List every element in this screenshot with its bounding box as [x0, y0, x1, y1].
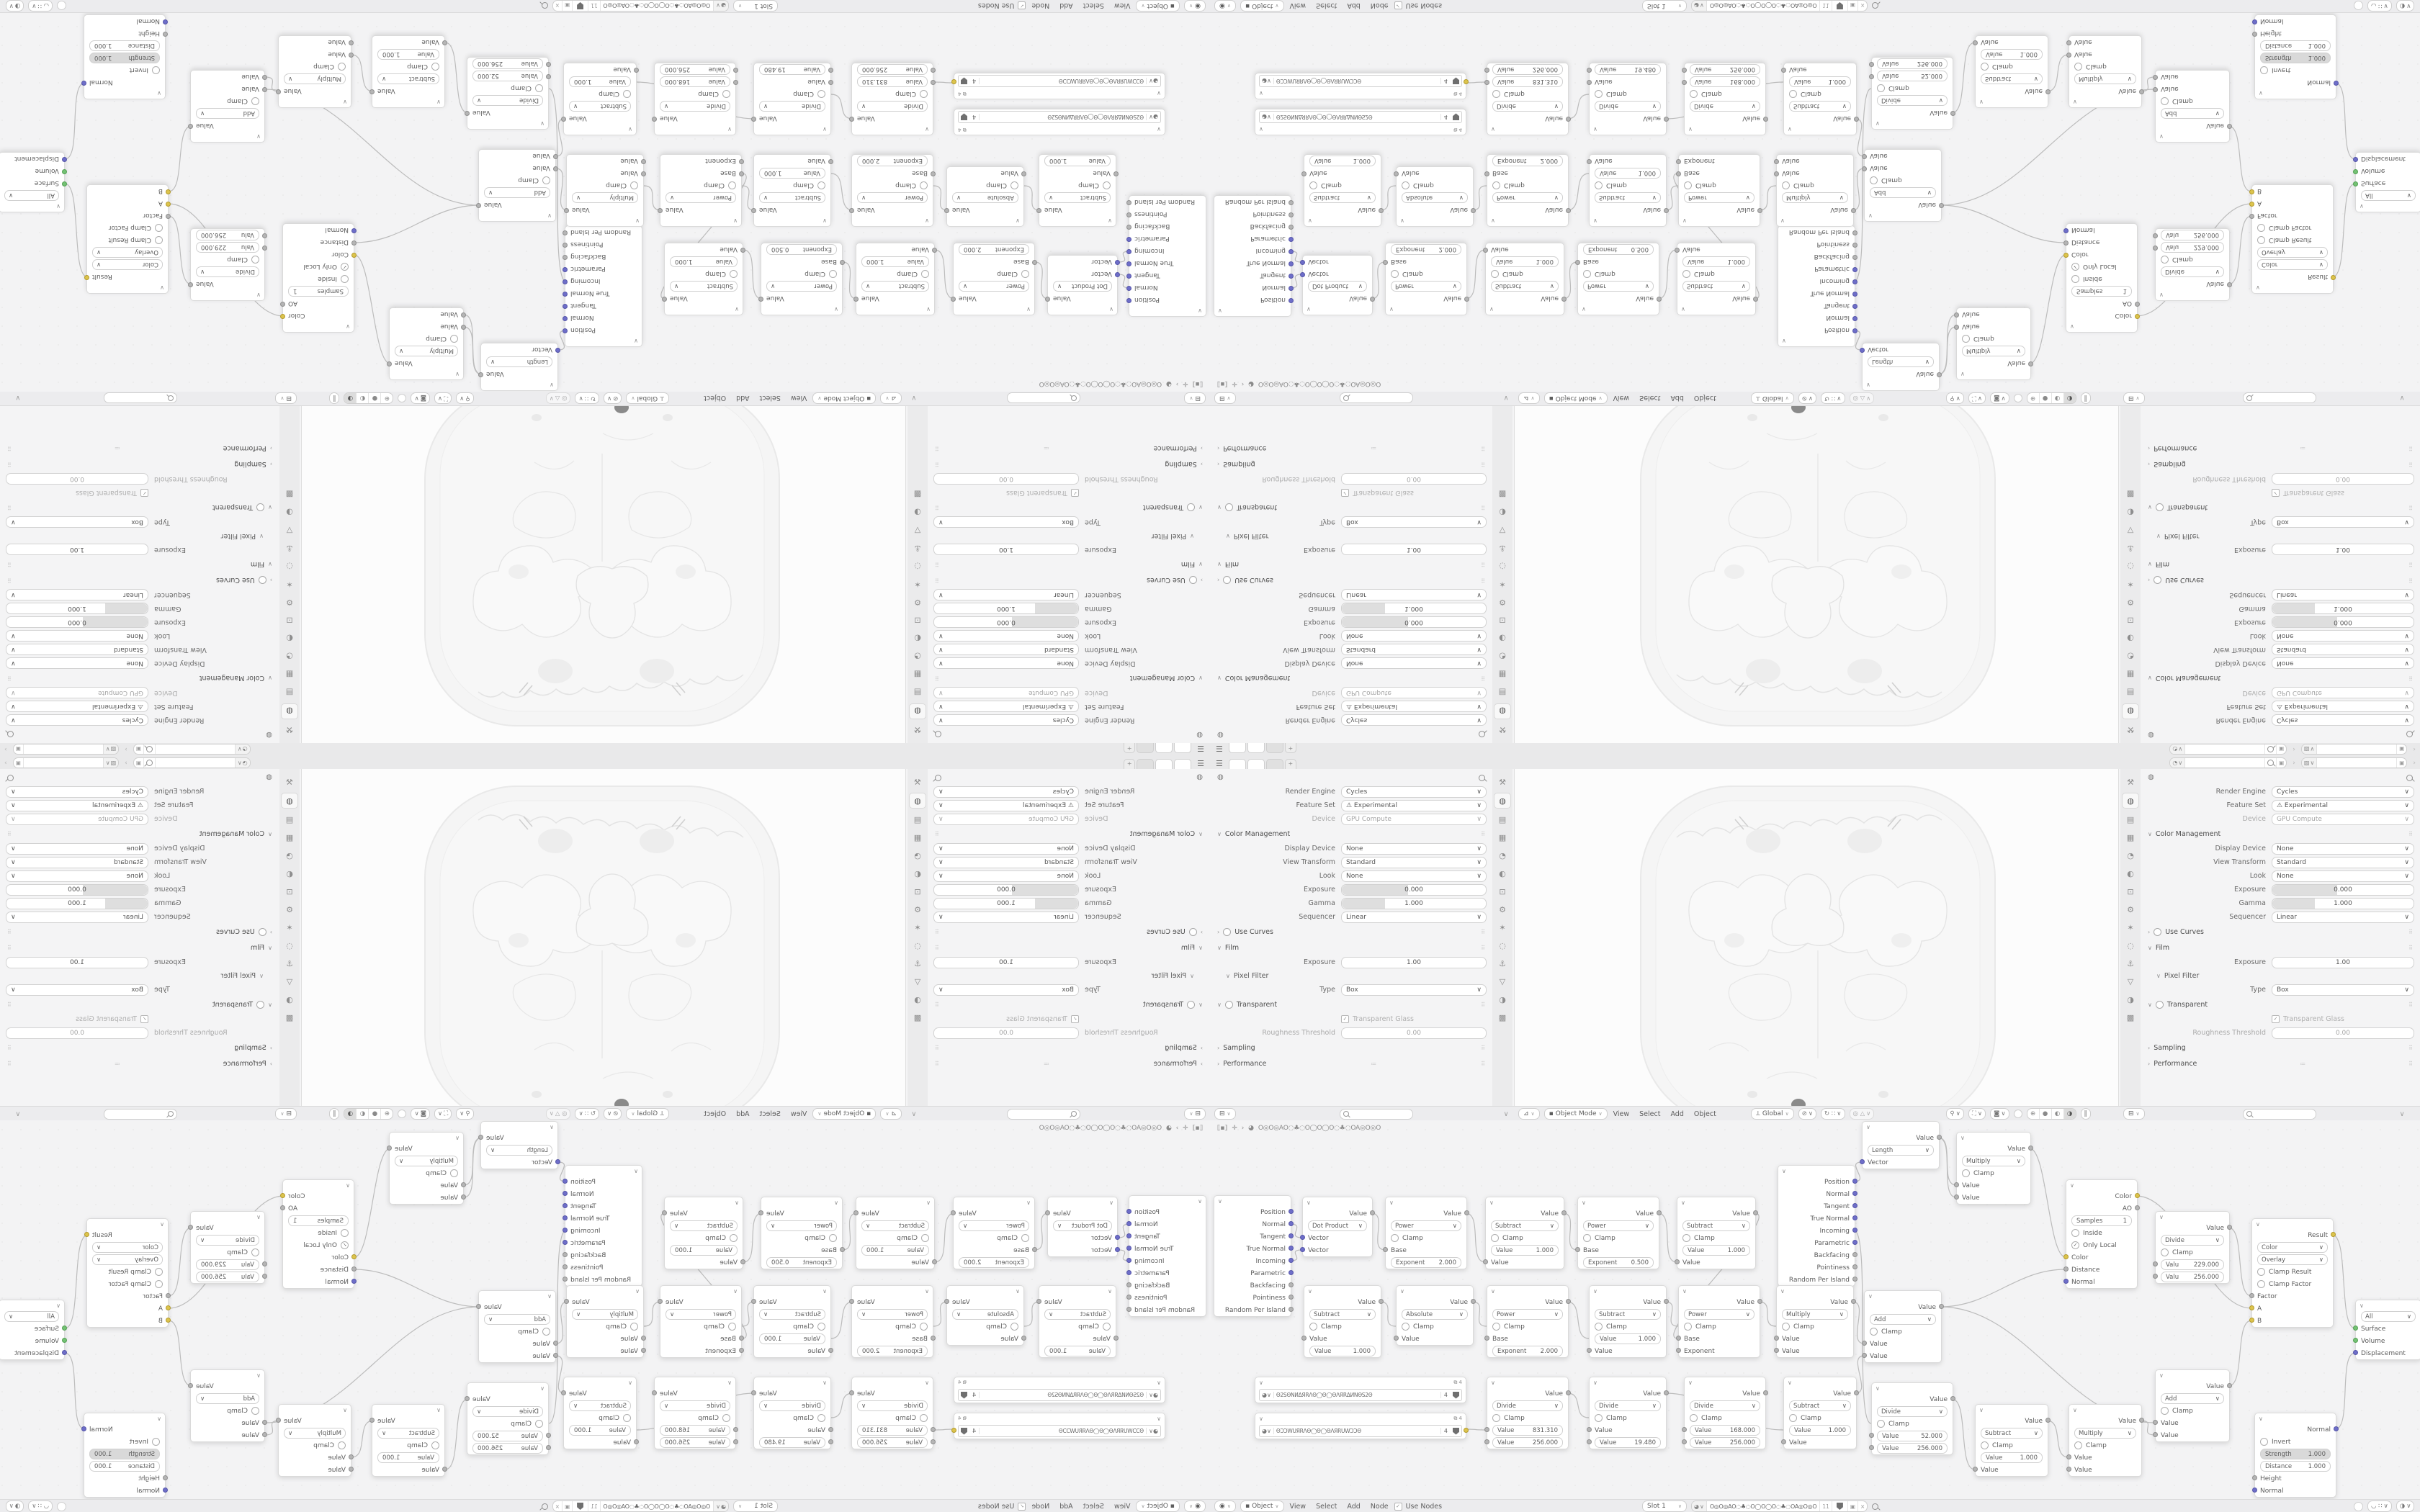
- operation-dropdown[interactable]: Multiply∨: [1962, 1156, 2025, 1166]
- value-field[interactable]: Exponent2.000: [959, 244, 1029, 255]
- checkbox-clamp[interactable]: [1981, 63, 1989, 71]
- node-header[interactable]: ∨: [1386, 305, 1466, 315]
- pivot-point-button[interactable]: ⊘∨: [1798, 392, 1816, 404]
- viewport-editor-button[interactable]: ⊿∨: [880, 1108, 902, 1120]
- operation-dropdown[interactable]: Power∨: [665, 1309, 736, 1320]
- add-workspace-button[interactable]: +: [1285, 743, 1296, 753]
- output-socket-color[interactable]: [2135, 314, 2140, 319]
- shading-material-icon[interactable]: ◐: [356, 1109, 368, 1119]
- menu-view[interactable]: View: [1289, 1503, 1308, 1511]
- node-math-multiply-2[interactable]: ∨ValueMultiply∨ClampValueValue: [389, 1132, 464, 1205]
- node-header[interactable]: ∨: [1486, 305, 1564, 315]
- node-header[interactable]: ∨: [564, 1377, 636, 1387]
- section-film[interactable]: ∨Film⠿: [1210, 557, 1492, 572]
- output-socket-color[interactable]: [2135, 1193, 2140, 1198]
- node-math-divide-3[interactable]: ∨ValueDivide∨ClampValue168.000Value256.0…: [1684, 63, 1766, 135]
- particles-tab[interactable]: ✶: [2123, 920, 2138, 935]
- section-sampling[interactable]: ›Sampling⠿: [1210, 456, 1492, 472]
- value-field[interactable]: Samples1: [2071, 1215, 2132, 1226]
- section-transparent[interactable]: ∨Transparent⠿: [2141, 500, 2420, 516]
- value-input-socket[interactable]: [1484, 1427, 1489, 1432]
- image-datablock[interactable]: ◕∨Θ2SΘNИΔЯRΛΘ◯Θ◯ΘΛЯRΔИNΘS2Θ4: [958, 1389, 1161, 1401]
- output-socket-tangent[interactable]: [563, 1203, 568, 1208]
- node-math-power-3[interactable]: ∨ValuePower∨ClampBaseExponent2.000: [851, 1285, 933, 1358]
- value-field[interactable]: Value1.000: [1044, 1346, 1111, 1356]
- dropdown-view-transform[interactable]: Standard∨: [2272, 644, 2414, 656]
- material-datablock[interactable]: ◕∨ O◎O◎AO◌♣◌O◯O◯O◌♣◌OA◎O◎O 11 ▣ ×: [552, 0, 729, 12]
- shading-solid-icon[interactable]: ●: [2040, 393, 2052, 403]
- section-performance[interactable]: ›Performance≔⠿: [928, 1056, 1210, 1071]
- value-input-socket[interactable]: [546, 1433, 551, 1438]
- material-tab[interactable]: ◑: [2123, 505, 2138, 520]
- output-socket-value[interactable]: [951, 1210, 956, 1215]
- modifiers-tab[interactable]: ⚙: [1494, 595, 1510, 610]
- physics-tab[interactable]: ◌: [2123, 559, 2138, 574]
- shading-solid-icon[interactable]: ●: [368, 1109, 380, 1119]
- section-color-management[interactable]: ∨Color Management⠿: [1210, 670, 1492, 686]
- operation-dropdown[interactable]: Divide∨: [660, 1400, 730, 1411]
- shader-node-editor[interactable]: ⟦▪⟧ ✛ › ◕ O◎O◎AO◌♣◌O◯O◯O◌♣◌OA◎O◎O ∨Posit…: [0, 1120, 1210, 1499]
- node-math-power-2[interactable]: ∨ValuePower∨ClampBaseExponent0.500: [761, 243, 843, 315]
- checkbox-invert[interactable]: [2260, 66, 2268, 74]
- checkbox-clamp-factor[interactable]: [155, 1280, 163, 1288]
- input-socket-displacement[interactable]: [62, 1350, 67, 1355]
- input-socket-value[interactable]: [828, 80, 833, 85]
- dropdown-type[interactable]: Box∨: [6, 517, 148, 528]
- operation-dropdown[interactable]: Subtract∨: [1595, 192, 1661, 203]
- node-header[interactable]: ∨: [660, 1286, 741, 1296]
- collapse-chevron-icon[interactable]: ∨: [540, 1385, 544, 1392]
- output-socket-incoming[interactable]: [563, 1228, 568, 1233]
- collapse-chevron-icon[interactable]: ∨: [1491, 1380, 1495, 1386]
- node-header[interactable]: ∨: [1679, 1286, 1760, 1296]
- value-field[interactable]: Value1.000: [670, 1245, 738, 1256]
- checkbox-clamp-factor[interactable]: [2257, 1280, 2265, 1288]
- value-field-roughness-threshold[interactable]: 0.00: [1341, 474, 1487, 485]
- output-socket-value[interactable]: [662, 1210, 667, 1215]
- output-socket-color[interactable]: [280, 314, 285, 319]
- node-material-output[interactable]: ∨All∨SurfaceVolumeDisplacement: [0, 152, 65, 212]
- texture-tab[interactable]: ▩: [282, 1010, 297, 1025]
- move-icon[interactable]: ✛: [1232, 380, 1237, 387]
- filter-chevron-icon[interactable]: ∨: [15, 1110, 20, 1118]
- copy-icon[interactable]: ▣: [134, 758, 144, 768]
- operation-dropdown[interactable]: Add∨: [484, 1314, 550, 1325]
- constraints-tab[interactable]: ⚓: [910, 956, 926, 971]
- workspace-tab-active[interactable]: [1266, 759, 1283, 769]
- input-socket-value[interactable]: [461, 325, 466, 330]
- editor-type-button[interactable]: ⊟∨: [1184, 392, 1206, 404]
- output-socket-pointiness[interactable]: [563, 1264, 568, 1269]
- value-field-roughness-threshold[interactable]: 0.00: [2272, 1027, 2414, 1039]
- shading-wireframe-icon[interactable]: ⊕: [380, 393, 393, 403]
- output-socket-value[interactable]: [465, 111, 470, 116]
- menu-add[interactable]: Add: [1345, 2, 1361, 10]
- checkbox-clamp[interactable]: [921, 1234, 929, 1242]
- checkbox-clamp[interactable]: [1595, 1414, 1603, 1422]
- section-sampling[interactable]: ›Sampling⠿: [2141, 456, 2420, 472]
- checkbox-clamp-result[interactable]: [2257, 236, 2265, 244]
- node-header[interactable]: ∨: [191, 1370, 264, 1380]
- output-socket-value[interactable]: [1471, 1299, 1476, 1304]
- collapse-chevron-icon[interactable]: ∨: [1875, 121, 1880, 127]
- dropdown-render-engine[interactable]: Cycles∨: [6, 715, 148, 726]
- xray-button[interactable]: ◙∨: [1990, 1108, 2009, 1120]
- node-vector-math-dot-product[interactable]: ∨ValueDot Product∨VectorVector: [1047, 1197, 1118, 1257]
- operation-dropdown[interactable]: Multiply∨: [284, 73, 346, 84]
- node-math-add-1[interactable]: ∨ValueAdd∨ClampValueValue: [478, 1290, 556, 1363]
- output-socket-value[interactable]: [188, 124, 193, 129]
- value-input-socket[interactable]: [262, 246, 267, 251]
- particles-tab[interactable]: ✶: [1494, 920, 1510, 935]
- node-header[interactable]: ∨: [1872, 119, 1953, 129]
- section-performance[interactable]: ›Performance≔⠿: [928, 441, 1210, 456]
- checkbox-clamp[interactable]: [1962, 335, 1970, 343]
- value-field-exposure[interactable]: 0.000: [1341, 884, 1487, 896]
- output-socket-normal[interactable]: [2334, 81, 2339, 86]
- checkbox-clamp[interactable]: [1103, 1323, 1111, 1331]
- node-image-texture-1[interactable]: ∨⧉ 4◕∨Θ2SΘNИΔЯRΛΘ◯Θ◯ΘΛЯRΔИNΘS2Θ4: [954, 109, 1165, 135]
- input-socket-value[interactable]: [1113, 171, 1119, 176]
- checkbox-inside[interactable]: [341, 275, 349, 283]
- copy-icon[interactable]: ▣: [14, 758, 24, 768]
- section-sampling[interactable]: ›Sampling⠿: [928, 456, 1210, 472]
- checkbox-transparent-glass[interactable]: ✓Transparent Glass: [1341, 487, 1414, 500]
- input-socket-value[interactable]: [1774, 1336, 1779, 1341]
- copy-icon[interactable]: ▣: [1847, 1, 1857, 11]
- value-field-gamma[interactable]: 1.000: [933, 603, 1079, 615]
- output-socket-incoming[interactable]: [1126, 249, 1131, 254]
- pin-icon[interactable]: [2264, 758, 2276, 768]
- checkbox-clamp[interactable]: [920, 181, 928, 189]
- node-header[interactable]: ∨: [655, 1377, 735, 1387]
- value-field[interactable]: Value256.000: [472, 1443, 543, 1454]
- collapse-chevron-icon[interactable]: ∨: [157, 91, 161, 97]
- input-socket-value[interactable]: [1394, 1336, 1399, 1341]
- user-count[interactable]: 11: [1819, 1501, 1832, 1511]
- output-socket-normal[interactable]: [563, 1191, 568, 1196]
- physics-tab[interactable]: ◌: [1494, 559, 1510, 574]
- menu-select[interactable]: Select: [1638, 395, 1662, 402]
- operation-dropdown[interactable]: Divide∨: [1595, 1400, 1661, 1411]
- fake-user-shield-icon[interactable]: [961, 1428, 967, 1435]
- section-use-curves[interactable]: ›Use Curves⠿: [0, 572, 279, 588]
- output-socket-normal[interactable]: [1126, 1221, 1131, 1226]
- output-socket-value[interactable]: [849, 117, 854, 122]
- section-color-management[interactable]: ∨Color Management⠿: [1210, 826, 1492, 842]
- dropdown-type[interactable]: Box∨: [1341, 984, 1487, 996]
- parent-toggle[interactable]: [2354, 1, 2363, 11]
- modifiers-tab[interactable]: ⚙: [2123, 595, 2138, 610]
- collapse-chevron-icon[interactable]: ∨: [1780, 1288, 1785, 1295]
- section-checkbox[interactable]: [1225, 504, 1233, 512]
- input-socket-value[interactable]: [1954, 1194, 1959, 1200]
- value-field-exposure[interactable]: 1.00: [2272, 957, 2414, 968]
- value-input-socket[interactable]: [1682, 1427, 1687, 1432]
- input-socket-base[interactable]: [1383, 260, 1388, 265]
- node-header[interactable]: ∨: [954, 305, 1034, 315]
- dropdown-sequencer[interactable]: Linear∨: [2272, 912, 2414, 923]
- input-socket-value[interactable]: [2066, 1454, 2071, 1459]
- shading-material-icon[interactable]: ◐: [2052, 1109, 2064, 1119]
- node-math-subtract-3[interactable]: ∨ValueSubtract∨ClampValueValue1.000: [1304, 154, 1381, 227]
- input-socket-value[interactable]: [641, 159, 646, 164]
- node-header[interactable]: ∨: [1865, 211, 1941, 221]
- copy-icon[interactable]: ▣: [14, 744, 24, 754]
- fake-user-shield-icon[interactable]: [1453, 114, 1459, 121]
- pin-icon[interactable]: [144, 758, 156, 768]
- node-header[interactable]: ∨: [279, 97, 351, 107]
- output-socket-value[interactable]: [1854, 1390, 1859, 1395]
- section-performance[interactable]: ›Performance≔⠿: [2141, 1056, 2420, 1071]
- operation-dropdown[interactable]: Subtract∨: [670, 1220, 738, 1231]
- collapse-chevron-icon[interactable]: ∨: [1491, 218, 1495, 225]
- section-checkbox[interactable]: [2156, 1001, 2164, 1009]
- collapse-chevron-icon[interactable]: ∨: [1681, 1200, 1685, 1206]
- operation-dropdown[interactable]: Color∨: [92, 1242, 163, 1253]
- node-math-add-1[interactable]: ∨ValueAdd∨ClampValueValue: [478, 149, 556, 222]
- input-socket-value[interactable]: [349, 1467, 354, 1472]
- physics-tab[interactable]: ◌: [282, 938, 297, 953]
- scene-tab[interactable]: ◔: [910, 649, 926, 664]
- pin-icon[interactable]: [144, 744, 156, 754]
- checkbox-clamp[interactable]: [2161, 97, 2169, 105]
- orientation-selector[interactable]: ⟂ Global∨: [626, 1108, 669, 1120]
- checkbox-clamp[interactable]: [251, 1407, 259, 1415]
- input-socket-value[interactable]: [1774, 1348, 1779, 1353]
- input-socket-b[interactable]: [166, 1318, 171, 1323]
- node-math-subtract-3[interactable]: ∨ValueSubtract∨ClampValueValue1.000: [1304, 1285, 1381, 1358]
- checkbox-clamp[interactable]: [1595, 181, 1603, 189]
- collapse-chevron-icon[interactable]: ∨: [1157, 91, 1161, 97]
- scene-tab[interactable]: ◔: [1494, 649, 1510, 664]
- node-header[interactable]: ∨: [1048, 305, 1117, 315]
- constraints-tab[interactable]: ⚓: [1494, 956, 1510, 971]
- section-film[interactable]: ∨Film⠿: [2141, 940, 2420, 955]
- view-layer-name-field[interactable]: [2317, 744, 2396, 754]
- operation-dropdown[interactable]: Subtract∨: [1044, 192, 1111, 203]
- node-header[interactable]: ∨: [84, 1413, 165, 1423]
- input-socket-volume[interactable]: [62, 169, 67, 174]
- checkbox-clamp[interactable]: [623, 1414, 631, 1422]
- value-input-socket[interactable]: [546, 62, 551, 67]
- snapping-button[interactable]: ◡ ∷∨: [2367, 1500, 2392, 1512]
- copy-icon[interactable]: ▣: [563, 1501, 573, 1511]
- collapse-chevron-icon[interactable]: ∨: [1782, 1168, 1786, 1174]
- output-socket-backfacing[interactable]: [563, 1252, 568, 1257]
- scene-name-field[interactable]: [2185, 758, 2264, 768]
- view-layer-tab[interactable]: ▦: [2123, 667, 2138, 682]
- collapse-chevron-icon[interactable]: ∨: [1489, 1200, 1494, 1206]
- value-input-socket[interactable]: [828, 68, 833, 73]
- dropdown-type[interactable]: Box∨: [1341, 517, 1487, 528]
- view-layer-tab[interactable]: ▦: [282, 667, 297, 682]
- node-header[interactable]: ∨: [279, 1405, 351, 1415]
- input-socket-value[interactable]: [442, 40, 447, 45]
- output-socket-value[interactable]: [1045, 297, 1050, 302]
- value-field-exposure[interactable]: 1.00: [6, 957, 148, 968]
- value-field-roughness-threshold[interactable]: 0.00: [933, 474, 1079, 485]
- mode-selector[interactable]: ▪ Object Mode∨: [812, 392, 876, 404]
- operation-dropdown[interactable]: Divide∨: [1690, 101, 1760, 112]
- input-socket-base[interactable]: [1575, 260, 1580, 265]
- value-input-socket[interactable]: [262, 1274, 267, 1279]
- operation-dropdown[interactable]: Add∨: [1870, 1314, 1936, 1325]
- value-field-roughness-threshold[interactable]: 0.00: [2272, 474, 2414, 485]
- output-socket-value[interactable]: [853, 297, 859, 302]
- node-header[interactable]: ∨: [665, 305, 743, 315]
- operation-dropdown[interactable]: Subtract∨: [377, 73, 439, 84]
- node-header[interactable]: ∨: [87, 1219, 168, 1229]
- input-socket-value[interactable]: [1675, 1259, 1680, 1264]
- operation-dropdown[interactable]: Multiply∨: [395, 1156, 458, 1166]
- operation-dropdown[interactable]: Power∨: [1391, 281, 1461, 292]
- operation-dropdown[interactable]: Subtract∨: [861, 281, 929, 292]
- node-header[interactable]: ∨: [754, 216, 830, 226]
- input-socket-volume[interactable]: [2353, 169, 2358, 174]
- checkbox-clamp[interactable]: [2074, 63, 2082, 71]
- value-input-socket[interactable]: [733, 68, 738, 73]
- input-socket-surface[interactable]: [2353, 181, 2358, 186]
- value-field[interactable]: Strength1.000: [2260, 1449, 2331, 1459]
- dropdown-look[interactable]: None∨: [1341, 631, 1487, 642]
- checkbox-invert[interactable]: [152, 66, 160, 74]
- node-header[interactable]: ∨: [567, 216, 643, 226]
- world-tab[interactable]: ◐: [910, 631, 926, 646]
- material-tab[interactable]: ◑: [910, 505, 926, 520]
- input-socket-surface[interactable]: [2353, 1326, 2358, 1331]
- node-ambient-occlusion[interactable]: ∨ColorAOSamples1Inside✓Only LocalColorDi…: [2066, 1179, 2138, 1289]
- menu-add[interactable]: Add: [1058, 1503, 1074, 1511]
- view-layer-tab[interactable]: ▦: [910, 667, 926, 682]
- collapse-chevron-icon[interactable]: ∨: [1491, 1288, 1495, 1295]
- node-math-multiply-1[interactable]: ∨ValueMultiply∨ClampValueValue: [1776, 1285, 1854, 1358]
- output-socket-position[interactable]: [563, 1179, 568, 1184]
- output-socket-value[interactable]: [1664, 208, 1669, 213]
- value-field[interactable]: Value256.000: [1492, 64, 1563, 75]
- view-layer-selector[interactable]: ▨∨ ▣: [2301, 744, 2408, 755]
- collapse-chevron-icon[interactable]: ∨: [2359, 204, 2364, 210]
- value-field[interactable]: Value1.000: [377, 49, 439, 60]
- collapse-chevron-icon[interactable]: ∨: [735, 1200, 739, 1206]
- collapse-chevron-icon[interactable]: ∨: [628, 1380, 632, 1386]
- section-film[interactable]: ∨Film⠿: [928, 557, 1210, 572]
- output-socket-ao[interactable]: [2135, 302, 2140, 307]
- collapse-chevron-icon[interactable]: ∨: [823, 1380, 827, 1386]
- section-use-curves[interactable]: ›Use Curves⠿: [0, 924, 279, 940]
- dropdown-sequencer[interactable]: Linear∨: [1341, 912, 1487, 923]
- dropdown-type[interactable]: Box∨: [933, 984, 1079, 996]
- copy-icon[interactable]: ▣: [2396, 758, 2406, 768]
- input-socket-value[interactable]: [1973, 1467, 1978, 1472]
- input-socket-value[interactable]: [1587, 1348, 1592, 1353]
- value-field-gamma[interactable]: 1.000: [1341, 898, 1487, 909]
- value-field[interactable]: Value52.000: [1877, 71, 1948, 81]
- node-header[interactable]: ∨: [372, 1405, 444, 1415]
- collapse-chevron-icon[interactable]: ∨: [547, 1293, 552, 1300]
- gizmo-toggle-button[interactable]: ⚲∨: [456, 1108, 473, 1120]
- collapse-chevron-icon[interactable]: ∨: [926, 1200, 931, 1206]
- value-field[interactable]: Value19.480: [759, 1437, 825, 1448]
- checkbox-invert[interactable]: [152, 1438, 160, 1446]
- input-socket-height[interactable]: [163, 1475, 168, 1480]
- operation-dropdown[interactable]: Multiply∨: [1782, 1309, 1848, 1320]
- menu-view[interactable]: View: [1289, 2, 1308, 10]
- value-input-socket[interactable]: [1869, 74, 1874, 79]
- node-math-absolute[interactable]: ∨ValueAbsolute∨ClampValue: [946, 1285, 1024, 1346]
- output-socket-backfacing[interactable]: [1289, 225, 1294, 230]
- operation-dropdown[interactable]: Divide∨: [2161, 1235, 2224, 1246]
- node-header[interactable]: ∨: [1304, 216, 1381, 226]
- node-header[interactable]: ∨: [660, 216, 741, 226]
- render-tab[interactable]: ◍: [1494, 793, 1511, 809]
- pause-button[interactable]: ‖: [2081, 1108, 2091, 1120]
- node-header[interactable]: ∨: [2255, 1413, 2336, 1423]
- node-math-subtract-2[interactable]: ∨ValueSubtract∨ClampValue1.000Value: [1677, 1197, 1756, 1269]
- value-field[interactable]: Value256.000: [857, 1437, 928, 1448]
- value-input-socket[interactable]: [262, 1261, 267, 1266]
- value-field-exposure[interactable]: 0.000: [1341, 617, 1487, 629]
- dropdown-sequencer[interactable]: Linear∨: [1341, 590, 1487, 601]
- operation-dropdown[interactable]: Multiply∨: [572, 192, 638, 203]
- checkbox-clamp[interactable]: [730, 270, 738, 278]
- node-math-subtract-4[interactable]: ∨ValueSubtract∨ClampValue1.000Value: [753, 1285, 831, 1358]
- particles-tab[interactable]: ✶: [282, 920, 297, 935]
- operation-dropdown[interactable]: Subtract∨: [1789, 101, 1851, 112]
- shader-editor-icon-button[interactable]: ◉∨: [1214, 0, 1236, 12]
- node-header[interactable]: ∨: [1590, 1286, 1666, 1296]
- input-socket-value[interactable]: [553, 154, 558, 159]
- collapse-chevron-icon[interactable]: ∨: [2070, 324, 2074, 330]
- menu-select[interactable]: Select: [1082, 1503, 1106, 1511]
- operation-dropdown[interactable]: Power∨: [766, 281, 837, 292]
- output-socket-value[interactable]: [561, 117, 566, 122]
- operation-dropdown[interactable]: Add∨: [484, 187, 550, 198]
- input-socket-base[interactable]: [931, 171, 936, 176]
- copy-icon[interactable]: ▣: [563, 1, 573, 11]
- proportional-edit-button[interactable]: ◎ △∨: [546, 392, 571, 404]
- output-socket-random-per-island[interactable]: [563, 1277, 568, 1282]
- node-math-divide-5[interactable]: ∨ValueDivide∨ClampValue52.000Value256.00…: [1871, 1382, 1953, 1455]
- node-header[interactable]: ∨: [372, 97, 444, 107]
- section-checkbox[interactable]: [1187, 1001, 1195, 1009]
- operation-dropdown[interactable]: Divide∨: [1877, 95, 1948, 106]
- node-header[interactable]: ∨: [655, 125, 735, 135]
- output-socket-value[interactable]: [1036, 1299, 1041, 1304]
- section-checkbox[interactable]: [1225, 1001, 1233, 1009]
- node-material-output[interactable]: ∨All∨SurfaceVolumeDisplacement: [2355, 1300, 2420, 1360]
- output-socket-pointiness[interactable]: [1852, 243, 1857, 248]
- value-field[interactable]: Exponent0.500: [1583, 244, 1654, 255]
- node-header[interactable]: ∨: [1777, 1286, 1853, 1296]
- section-pixel-filter[interactable]: ∨Pixel Filter: [0, 969, 279, 983]
- checkbox-clamp[interactable]: [829, 1234, 837, 1242]
- checkbox-clamp[interactable]: [722, 90, 730, 98]
- value-field[interactable]: Value168.000: [660, 1425, 730, 1436]
- operation-dropdown[interactable]: Subtract∨: [759, 192, 825, 203]
- shader-editor-icon-button[interactable]: ◉∨: [1184, 0, 1206, 12]
- value-field[interactable]: Value52.000: [1877, 1431, 1948, 1441]
- input-socket-base[interactable]: [1575, 1247, 1580, 1252]
- operation-dropdown[interactable]: Power∨: [857, 1309, 928, 1320]
- output-socket-value[interactable]: [476, 203, 481, 208]
- input-socket-vector[interactable]: [1300, 272, 1305, 277]
- dropdown-render-engine[interactable]: Cycles∨: [2272, 786, 2414, 798]
- dropdown-look[interactable]: None∨: [2272, 631, 2414, 642]
- value-field[interactable]: Value1.000: [1981, 49, 2043, 60]
- collapse-chevron-icon[interactable]: ∨: [1780, 218, 1785, 225]
- dropdown-type[interactable]: Box∨: [933, 517, 1079, 528]
